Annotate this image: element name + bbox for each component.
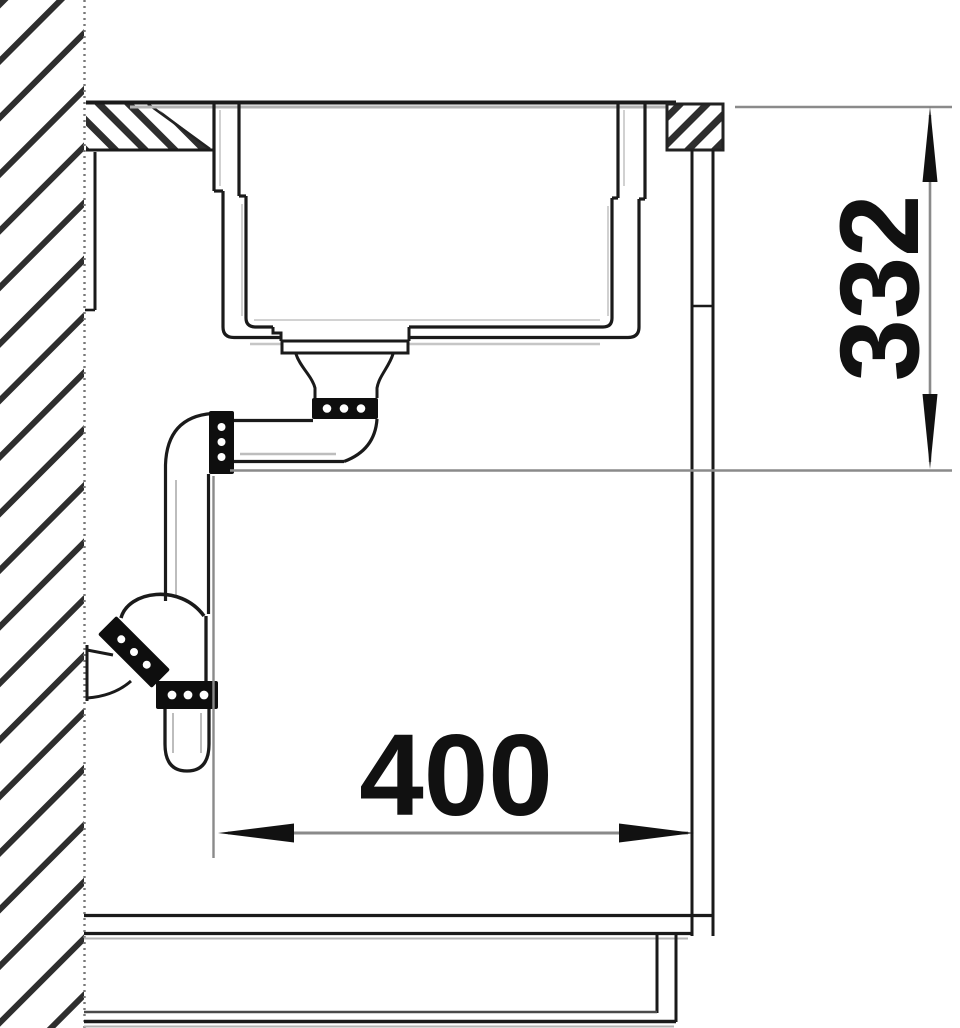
technical-drawing: 332 400 [0, 0, 960, 1028]
arrowhead-up [923, 107, 938, 182]
sink-basin [214, 104, 645, 344]
countertop-left-hatch [86, 103, 211, 149]
arrowhead-right [619, 824, 694, 843]
countertop [86, 103, 723, 151]
trap-dome [121, 594, 204, 618]
arrowhead-left [218, 824, 294, 843]
mounting-rail [85, 152, 95, 310]
wall-section-hatched [0, 0, 85, 1028]
dimension-label-332: 332 [817, 195, 942, 382]
siphon-trap [87, 594, 218, 771]
drain-pipe-elbow [166, 411, 378, 614]
trap-cup [165, 709, 209, 771]
cabinet-side-panel [692, 150, 713, 936]
arrowhead-down [923, 394, 938, 469]
cabinet [84, 150, 713, 1027]
angled-coupling-nut [98, 616, 170, 688]
dimension-400: 400 [214, 476, 695, 858]
dimension-label-400: 400 [359, 710, 553, 840]
plinth [84, 934, 676, 1027]
cabinet-bottom [84, 916, 713, 939]
countertop-right-hatch [667, 104, 723, 150]
drawing-canvas: 332 400 [0, 0, 960, 1028]
strainer-flange [282, 341, 408, 353]
drain-strainer [273, 327, 409, 419]
strainer-funnel [296, 354, 315, 398]
